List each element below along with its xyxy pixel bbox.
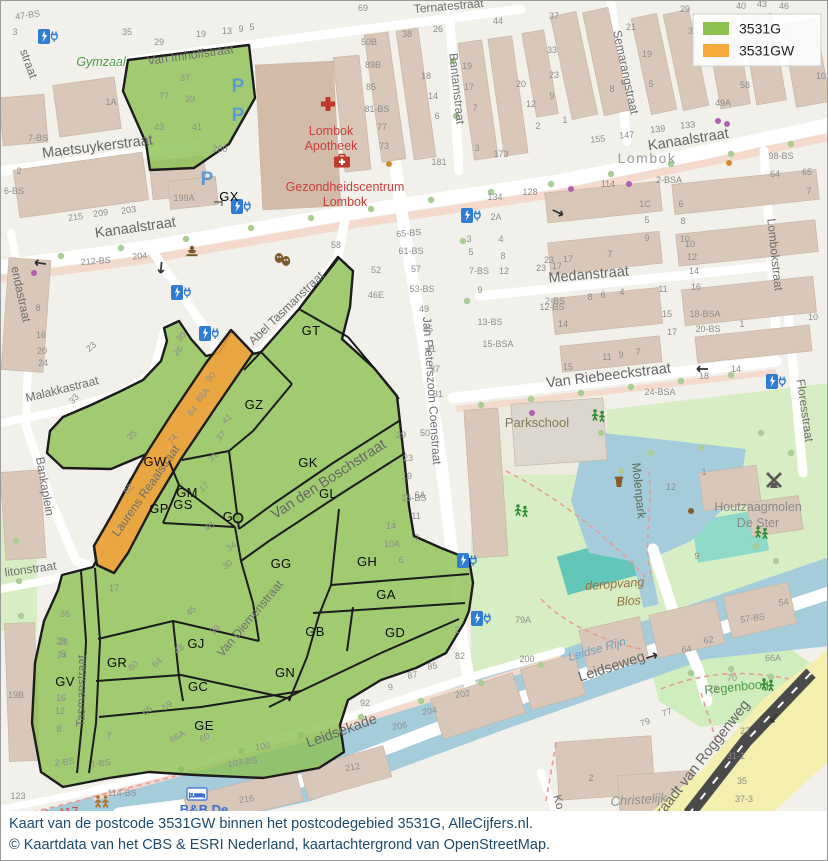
house-number: 40 (736, 1, 746, 11)
house-number: 7 (607, 249, 612, 259)
house-number: 20 (37, 346, 47, 356)
house-number: 2 (16, 166, 21, 176)
postcode-region-label-GV: GV (55, 674, 74, 689)
poi-label: Lombok (309, 124, 354, 138)
house-number: 199A (173, 193, 194, 203)
house-number: 64 (681, 643, 692, 654)
house-number: 62 (703, 634, 714, 645)
house-number: 17 (464, 82, 474, 92)
postcode-region-label-GR: GR (107, 655, 127, 670)
house-number: 43 (154, 122, 164, 132)
postcode-region-label-GG: GG (271, 556, 292, 571)
house-number: 204 (132, 250, 148, 261)
house-number: 3 (474, 143, 479, 153)
house-number: 5 (644, 215, 649, 225)
house-number: 37 (180, 73, 190, 83)
house-number: 216 (238, 793, 254, 805)
bed-icon (187, 788, 207, 800)
house-number: 39 (185, 94, 195, 104)
house-number: 24 (38, 358, 48, 368)
map-viewport[interactable]: P (0, 0, 828, 861)
house-number: 12 (687, 252, 697, 262)
house-number: 11 (602, 352, 611, 362)
house-number: 58 (740, 80, 750, 90)
house-number: 8 (35, 303, 40, 313)
postcode-region-label-GH: GH (357, 554, 377, 569)
house-number: 19 (462, 61, 472, 71)
house-number: 15-BSA (482, 339, 513, 349)
house-number: 18 (421, 71, 431, 81)
poi-label: Apotheek (305, 139, 359, 153)
poi-label: Gezondheidscentrum (286, 180, 405, 194)
house-number: 14 (558, 319, 568, 329)
house-number: 5 (648, 79, 653, 89)
house-number: 9 (549, 91, 554, 101)
street-label: Tasmanstraat (73, 654, 88, 727)
legend[interactable]: 3531G3531GW (693, 14, 821, 66)
house-number: 202 (454, 688, 470, 700)
house-number: 7 (635, 347, 640, 357)
house-number: 13 (222, 26, 232, 36)
house-number: 31-1 (727, 751, 745, 761)
house-number: 50B (361, 37, 377, 47)
poi-label: Parkschool (505, 415, 569, 430)
house-number: 133 (680, 119, 696, 130)
house-number: 17 (109, 583, 119, 593)
house-number: 14 (386, 521, 396, 531)
house-number: 4 (498, 234, 503, 244)
house-number: 181 (431, 157, 446, 167)
house-number: 41 (192, 122, 202, 132)
house-number: 81-BS (364, 104, 389, 114)
house-number: 139 (650, 123, 666, 134)
poi-label: Gymzaal (76, 55, 127, 69)
house-number: 31 (433, 389, 443, 399)
house-number: 57 (411, 264, 421, 274)
house-number: 53-BS (409, 284, 434, 294)
house-number: 114 (601, 179, 615, 189)
house-number: 8 (500, 251, 505, 261)
house-number: 33 (547, 45, 557, 55)
house-number: 29 (154, 37, 164, 47)
house-number: 3 (466, 234, 471, 244)
house-number: 16 (56, 693, 66, 703)
house-number: 24-BSA (644, 387, 675, 397)
house-number: 16 (691, 282, 701, 292)
house-number: 23 (403, 453, 413, 463)
postcode-region-label-GT: GT (302, 323, 321, 338)
house-number: 43 (757, 1, 767, 9)
house-number: 260 (212, 144, 227, 154)
house-number: 87 (407, 669, 419, 681)
house-number: 44 (493, 16, 503, 26)
legend-label-3531GW: 3531GW (739, 43, 795, 59)
house-number: 12 (499, 266, 509, 276)
house-number: 8 (609, 84, 614, 94)
house-number: 18-BSA (689, 309, 720, 319)
house-number: 8 (587, 292, 592, 302)
house-number: 9 (238, 24, 243, 34)
house-number: 11 (411, 511, 420, 521)
caption-bar: Kaart van de postcode 3531GW binnen het … (1, 811, 827, 860)
house-number: 98-BS (768, 151, 793, 161)
house-number: 45 (423, 324, 433, 334)
house-number: 36 (60, 609, 70, 619)
house-number: 23 (549, 70, 559, 80)
house-number: 155 (590, 133, 606, 144)
postcode-region-label-GZ: GZ (245, 397, 264, 412)
house-number: 27 (740, 726, 750, 736)
house-number: 7 (806, 186, 811, 196)
house-number: 1C (639, 199, 651, 209)
house-number: 17 (563, 254, 573, 264)
house-number: 12 (526, 99, 536, 109)
house-number: 89B (365, 60, 381, 70)
house-number: 15 (662, 309, 672, 319)
house-number: 203 (120, 204, 136, 216)
house-number: 64 (770, 169, 780, 179)
house-number: 100 (254, 740, 270, 752)
house-number: 2-BSA (656, 175, 682, 185)
house-number: 1 (739, 319, 744, 329)
postcode-region-label-GC: GC (188, 679, 208, 694)
house-number: 10 (816, 71, 826, 81)
house-number: 215 (67, 211, 83, 223)
house-number: 8 (56, 724, 61, 734)
house-number: 19 (402, 471, 412, 481)
postcode-region-label-GJ: GJ (187, 636, 204, 651)
house-number: 18 (699, 371, 709, 381)
house-number: 10 (685, 239, 695, 249)
postcode-region-label-GK: GK (298, 455, 317, 470)
house-number: 82 (455, 651, 465, 661)
house-number: 17 (667, 327, 677, 337)
postcode-region-label-GS: GS (173, 497, 192, 512)
osm-base-map[interactable]: P (1, 1, 828, 814)
legend-label-3531G: 3531G (739, 21, 781, 37)
house-number: 10A (384, 539, 400, 549)
caption-line1: Kaart van de postcode 3531GW binnen het … (9, 814, 819, 835)
house-number: 69 (358, 3, 368, 13)
house-number: 14 (689, 266, 699, 276)
house-number: 50 (420, 428, 430, 438)
house-number: 2 (535, 121, 540, 131)
house-number: 114-BS (107, 788, 136, 798)
house-number: 85 (427, 660, 439, 672)
poi-label: Lombok (618, 150, 677, 166)
house-number: 52 (371, 265, 381, 275)
house-number: 8 (680, 216, 685, 226)
house-number: 3 (12, 27, 17, 37)
caption-line2: © Kaartdata van het CBS & ESRI Nederland… (9, 835, 819, 856)
house-number: 77 (377, 122, 387, 132)
postcode-region-label-GB: GB (305, 624, 324, 639)
house-number: 2A (490, 212, 501, 222)
house-number: 73 (379, 141, 389, 151)
house-number: 206 (391, 720, 407, 732)
house-number: 37 (549, 11, 559, 21)
house-number: 204 (421, 705, 437, 717)
house-number: 46E (368, 290, 384, 300)
house-number: 16 (36, 330, 46, 340)
house-number: 5 (468, 247, 473, 257)
house-number: 6 (678, 199, 683, 209)
house-number: 10 (808, 312, 818, 322)
house-number: 6A (414, 490, 425, 500)
poi-label: Houtzaagmolen (714, 500, 802, 514)
postcode-region-label-GA: GA (376, 587, 395, 602)
postcode-region-label-GP: GP (149, 501, 168, 516)
house-number: 5 (249, 22, 254, 32)
house-number: 7 (414, 533, 419, 543)
house-number: 9 (644, 233, 649, 243)
legend-swatch-3531GW (703, 44, 729, 57)
house-number: 65 (802, 167, 812, 177)
house-number: 38 (402, 29, 412, 39)
house-number: 61-BS (398, 246, 423, 256)
house-number: 20-BS (695, 324, 720, 334)
house-number: 46 (779, 1, 789, 11)
house-number: 37 (430, 364, 440, 374)
postcode-region-label-G: G (223, 509, 233, 524)
house-number: 79A (515, 615, 531, 625)
house-number: 19 (196, 29, 206, 39)
house-number: 28 (56, 636, 66, 646)
house-number: 200 (519, 654, 534, 664)
house-number: 6 (434, 111, 439, 121)
house-number: 37-3 (735, 794, 753, 804)
house-number: 2 (588, 773, 593, 783)
postcode-region-label-GE: GE (194, 718, 213, 733)
house-number: 6-BS (4, 186, 24, 196)
house-number: 123 (10, 791, 25, 801)
house-number: 29 (680, 4, 690, 14)
poi-label: Blos (616, 593, 641, 609)
house-number: 134 (487, 192, 502, 202)
house-number: 20 (516, 79, 526, 89)
house-number: 173 (493, 149, 508, 159)
house-number: 54 (778, 596, 789, 607)
house-number: 1-BS (90, 757, 111, 769)
house-number: 147 (619, 129, 635, 140)
house-number: 128 (522, 187, 537, 197)
house-number: 1 (701, 467, 706, 477)
house-number: 85 (366, 82, 376, 92)
parking-icon (232, 76, 245, 97)
house-number: 1A (105, 97, 116, 107)
house-number: 35 (737, 776, 747, 786)
house-number: 77 (159, 91, 169, 101)
house-number: 14 (731, 364, 741, 374)
house-number: 26 (433, 24, 443, 34)
house-number: 49 (419, 304, 429, 314)
house-number: 7-BS (469, 266, 489, 276)
house-number: 12 (55, 706, 65, 716)
house-number: 6 (600, 290, 605, 300)
house-number: 6 (398, 555, 403, 565)
poi-label: De Ster (737, 516, 779, 530)
house-number: 4 (619, 287, 624, 297)
parking-icon (232, 105, 245, 126)
house-number: 29 (396, 430, 406, 440)
house-number: 19 (642, 49, 652, 59)
house-number: 1 (562, 115, 567, 125)
postcode-region-label-GD: GD (385, 625, 405, 640)
parking-icon (201, 169, 214, 190)
postcode-region-label-GX: GX (219, 189, 238, 204)
house-number: 2 (454, 625, 459, 635)
house-number: 9 (477, 285, 482, 295)
house-number: 9 (618, 350, 623, 360)
house-number: 13-BS (477, 317, 502, 327)
postcode-region-label-GN: GN (275, 665, 295, 680)
house-number: 66A (765, 653, 781, 663)
house-number: 49A (715, 98, 731, 108)
postcode-region-label-GL: GL (319, 486, 337, 501)
house-number: 58 (331, 240, 341, 250)
house-number: 14 (428, 91, 438, 101)
house-number: 7 (106, 731, 111, 741)
house-number: 2-BS (54, 756, 75, 768)
house-number: 12 (666, 482, 676, 492)
house-number: 35 (122, 27, 132, 37)
house-number: 15 (563, 362, 573, 372)
house-number: 41 (426, 344, 436, 354)
house-number: 209 (92, 207, 108, 219)
house-number: 23 (544, 255, 554, 265)
house-number: 7 (472, 103, 477, 113)
house-number: 7-BS (28, 133, 48, 143)
house-number: 19B (8, 690, 24, 700)
house-number: 92 (360, 698, 370, 708)
poi-label: Lombok (323, 195, 368, 209)
house-number: 9 (694, 551, 699, 561)
legend-swatch-3531G (703, 22, 729, 35)
house-number: 5 (60, 649, 65, 659)
house-number: 2-BS (545, 296, 565, 306)
postcode-region-label-GW: GW (144, 454, 167, 469)
house-number: 11 (658, 284, 667, 294)
house-number: 21 (626, 22, 636, 32)
house-number: 70 (727, 673, 737, 683)
zone-G-point[interactable] (234, 514, 243, 523)
house-number: 72 (708, 684, 718, 694)
